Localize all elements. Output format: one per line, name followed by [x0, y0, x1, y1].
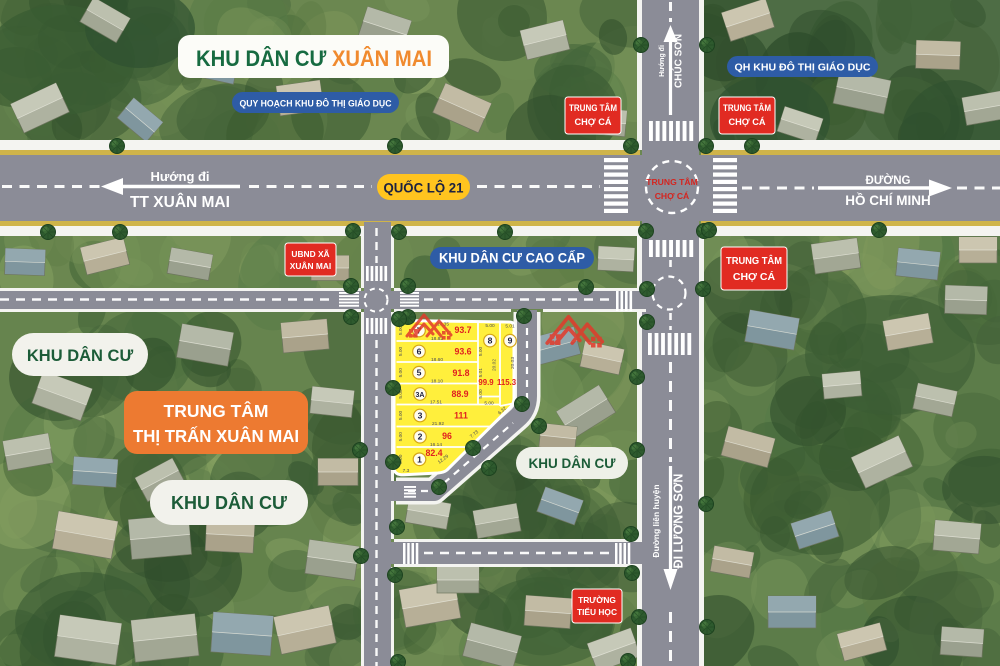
svg-text:TRUNG TÂM: TRUNG TÂM [646, 176, 698, 187]
svg-text:ĐƯỜNG: ĐƯỜNG [866, 174, 911, 187]
svg-text:Đường liên huyện: Đường liên huyện [651, 484, 661, 557]
svg-text:5.00: 5.00 [478, 347, 484, 357]
svg-text:2: 2 [418, 432, 423, 442]
svg-text:1: 1 [417, 454, 422, 464]
svg-text:7.3: 7.3 [403, 468, 410, 474]
svg-text:5.00: 5.00 [485, 323, 495, 329]
svg-text:TRUNG TÂM: TRUNG TÂM [726, 254, 782, 267]
svg-text:20.03: 20.03 [510, 357, 516, 369]
svg-text:82.4: 82.4 [425, 448, 442, 458]
svg-text:QUY HOẠCH KHU ĐÔ THỊ GIÁO DỤC: QUY HOẠCH KHU ĐÔ THỊ GIÁO DỤC [240, 98, 392, 110]
svg-text:TRUNG TÂM: TRUNG TÂM [723, 102, 771, 113]
svg-text:5.00: 5.00 [398, 368, 404, 378]
svg-text:THỊ TRẤN XUÂN MAI: THỊ TRẤN XUÂN MAI [133, 425, 299, 446]
svg-text:TRUNG TÂM: TRUNG TÂM [569, 102, 617, 113]
svg-text:93.7: 93.7 [454, 325, 471, 335]
svg-text:QUỐC LỘ 21: QUỐC LỘ 21 [384, 179, 464, 196]
svg-text:5.01: 5.01 [478, 368, 484, 378]
svg-text:CHỢ CÁ: CHỢ CÁ [575, 116, 612, 127]
svg-text:9: 9 [508, 336, 513, 346]
svg-text:Hướng đi: Hướng đi [150, 169, 209, 184]
svg-text:KHU DÂN CƯ: KHU DÂN CƯ [171, 492, 287, 513]
svg-text:KHU DÂN CƯ: KHU DÂN CƯ [529, 456, 617, 471]
svg-text:5.00: 5.00 [484, 401, 494, 407]
svg-text:CHÚC SƠN: CHÚC SƠN [672, 34, 685, 88]
svg-text:HỒ CHÍ MINH: HỒ CHÍ MINH [845, 193, 931, 208]
svg-text:KHU DÂN CƯ XUÂN MAI: KHU DÂN CƯ XUÂN MAI [196, 46, 432, 71]
svg-text:18.60: 18.60 [431, 357, 443, 363]
svg-text:CHỢ CÁ: CHỢ CÁ [655, 191, 690, 201]
svg-text:21.92: 21.92 [432, 421, 444, 427]
svg-text:8: 8 [488, 336, 493, 346]
svg-text:88.9: 88.9 [451, 389, 468, 399]
svg-text:Hướng đi: Hướng đi [659, 45, 666, 77]
svg-text:CHỢ CÁ: CHỢ CÁ [733, 270, 776, 283]
svg-text:KHU DÂN CƯ: KHU DÂN CƯ [27, 346, 134, 365]
svg-text:17.51: 17.51 [430, 400, 442, 406]
svg-text:ĐI LƯƠNG SƠN: ĐI LƯƠNG SƠN [672, 474, 686, 569]
svg-text:20.02: 20.02 [492, 359, 498, 371]
svg-text:TRUNG TÂM: TRUNG TÂM [164, 400, 269, 421]
svg-text:5.00: 5.00 [398, 411, 404, 421]
svg-text:5.00: 5.00 [478, 389, 484, 399]
svg-text:TT XUÂN MAI: TT XUÂN MAI [130, 193, 230, 211]
svg-text:QH KHU ĐÔ THỊ GIÁO DỤC: QH KHU ĐÔ THỊ GIÁO DỤC [735, 61, 871, 74]
svg-text:KHU DÂN CƯ CAO CẤP: KHU DÂN CƯ CAO CẤP [439, 251, 585, 266]
svg-text:115.3: 115.3 [497, 378, 517, 387]
svg-text:91.8: 91.8 [452, 368, 469, 378]
svg-text:UBND XÃ: UBND XÃ [291, 249, 329, 259]
svg-text:6: 6 [417, 347, 422, 357]
svg-text:TRƯỜNG: TRƯỜNG [578, 594, 616, 605]
svg-text:93.6: 93.6 [454, 347, 471, 357]
svg-text:3A: 3A [416, 392, 425, 399]
svg-text:5: 5 [417, 368, 422, 378]
svg-text:96: 96 [442, 431, 452, 441]
svg-text:CHỢ CÁ: CHỢ CÁ [729, 116, 766, 127]
svg-text:5.00: 5.00 [398, 432, 404, 442]
svg-text:5.01: 5.01 [505, 324, 515, 330]
svg-text:TIỂU HỌC: TIỂU HỌC [577, 606, 617, 617]
svg-text:99.9: 99.9 [478, 378, 494, 387]
svg-text:3: 3 [418, 411, 423, 421]
svg-text:XUÂN MAI: XUÂN MAI [290, 260, 331, 271]
svg-text:111: 111 [454, 411, 468, 421]
svg-text:18.10: 18.10 [431, 378, 443, 384]
svg-text:5.00: 5.00 [398, 347, 404, 357]
